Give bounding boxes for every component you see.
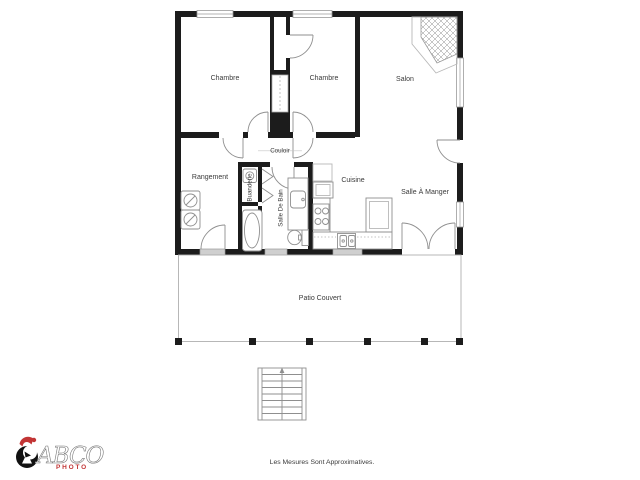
door-couloir-west — [223, 138, 243, 158]
door-rangement-patio — [201, 225, 225, 249]
label-chambre-1: Chambre — [211, 75, 240, 82]
abco-photo-logo: ABCO PHOTO — [16, 437, 105, 471]
dryer-icon — [181, 210, 200, 229]
fireplace-icon — [412, 17, 457, 73]
logo-mark-icon — [16, 437, 38, 468]
washer-icon — [181, 191, 200, 210]
stove-icon — [313, 204, 329, 230]
bifold-doors-icon — [262, 169, 273, 203]
peninsula-counter — [366, 198, 392, 232]
interior-walls — [181, 17, 360, 249]
label-buanderie: Buanderie — [247, 173, 254, 202]
label-couloir: Couloir — [270, 148, 290, 155]
bathtub-icon — [243, 210, 263, 251]
label-salle-a-manger: Salle À Manger — [401, 187, 450, 196]
fridge-icon — [313, 182, 333, 198]
stairs-icon — [258, 368, 306, 421]
floor-plan-drawing: Chambre Chambre Salon Couloir Rangement … — [0, 0, 640, 480]
door-french-right — [429, 223, 455, 249]
vanity-sink-icon — [288, 178, 308, 230]
label-patio-couvert: Patio Couvert — [299, 295, 341, 302]
double-sink-icon — [338, 234, 356, 249]
toilet-icon — [288, 230, 309, 246]
door-chambre1 — [248, 112, 268, 132]
sliding-closet-icon — [272, 75, 288, 112]
floor-plan-page: Chambre Chambre Salon Couloir Rangement … — [0, 0, 640, 480]
door-couloir-east — [293, 138, 313, 158]
label-rangement: Rangement — [192, 174, 228, 181]
label-cuisine: Cuisine — [341, 177, 364, 184]
door-front-entry — [437, 140, 460, 163]
disclaimer-text: Les Mesures Sont Approximatives. — [270, 459, 375, 466]
label-salle-de-bain: Salle De Bain — [278, 189, 285, 227]
label-chambre-2: Chambre — [310, 75, 339, 82]
label-salon: Salon — [396, 76, 414, 83]
door-chambre2 — [293, 112, 313, 132]
door-chambre2-closet — [290, 35, 313, 58]
logo-subtext: PHOTO — [56, 464, 88, 471]
door-french-left — [402, 223, 428, 249]
